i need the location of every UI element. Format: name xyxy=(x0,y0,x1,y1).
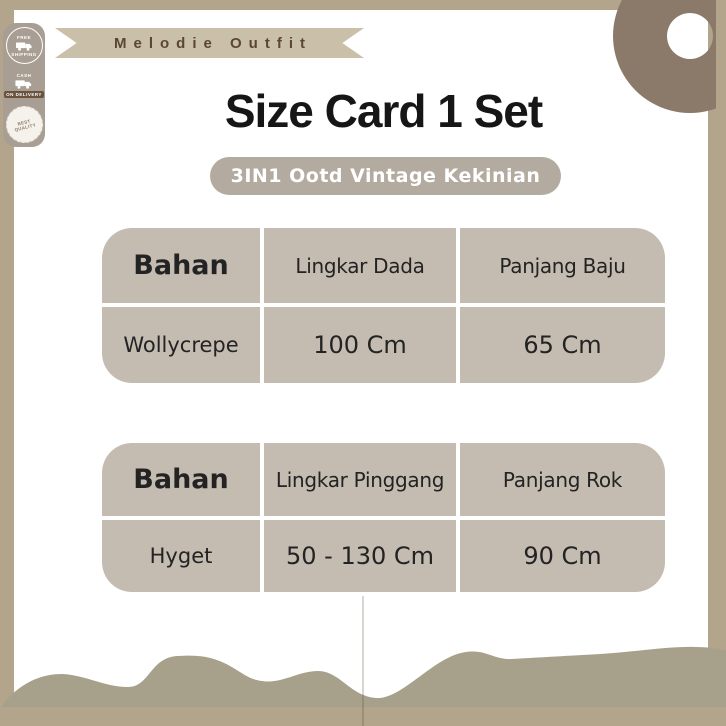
seam-line xyxy=(362,596,364,726)
header-cell: Bahan xyxy=(102,443,260,516)
badge-text: FREE xyxy=(17,35,31,40)
cash-on-delivery-badge: CASH ON DELIVERY xyxy=(6,67,43,104)
truck-icon xyxy=(16,41,33,51)
size-table-top: Bahan Lingkar Dada Panjang Baju Wollycre… xyxy=(102,228,665,383)
header-cell: Panjang Rok xyxy=(460,443,665,516)
data-cell: Hyget xyxy=(102,520,260,592)
badge-text: SHIPPING xyxy=(11,52,37,57)
data-cell: Wollycrepe xyxy=(102,307,260,383)
free-shipping-badge: FREE SHIPPING xyxy=(6,27,43,64)
badge-text: CASH xyxy=(17,73,32,78)
page-title: Size Card 1 Set xyxy=(102,84,665,138)
size-card-poster: Melodie Outfit FREE SHIPPING CASH ON DEL… xyxy=(0,0,726,726)
subtitle-pill: 3IN1 Ootd Vintage Kekinian xyxy=(210,157,561,195)
size-table-bottom: Bahan Lingkar Pinggang Panjang Rok Hyget… xyxy=(102,443,665,592)
brand-ribbon: Melodie Outfit xyxy=(55,28,364,58)
header-cell: Bahan xyxy=(102,228,260,303)
data-cell: 65 Cm xyxy=(460,307,665,383)
header-cell: Panjang Baju xyxy=(460,228,665,303)
header-cell: Lingkar Dada xyxy=(264,228,456,303)
header-cell: Lingkar Pinggang xyxy=(264,443,456,516)
truck-icon xyxy=(15,79,33,89)
subtitle-text: 3IN1 Ootd Vintage Kekinian xyxy=(231,165,541,187)
badge-column: FREE SHIPPING CASH ON DELIVERY BEST QUAL… xyxy=(3,23,45,147)
badge-text: ON DELIVERY xyxy=(4,91,44,98)
brand-name: Melodie Outfit xyxy=(107,35,312,52)
data-cell: 50 - 130 Cm xyxy=(264,520,456,592)
data-cell: 90 Cm xyxy=(460,520,665,592)
best-quality-badge: BEST QUALITY xyxy=(2,102,47,147)
data-cell: 100 Cm xyxy=(264,307,456,383)
